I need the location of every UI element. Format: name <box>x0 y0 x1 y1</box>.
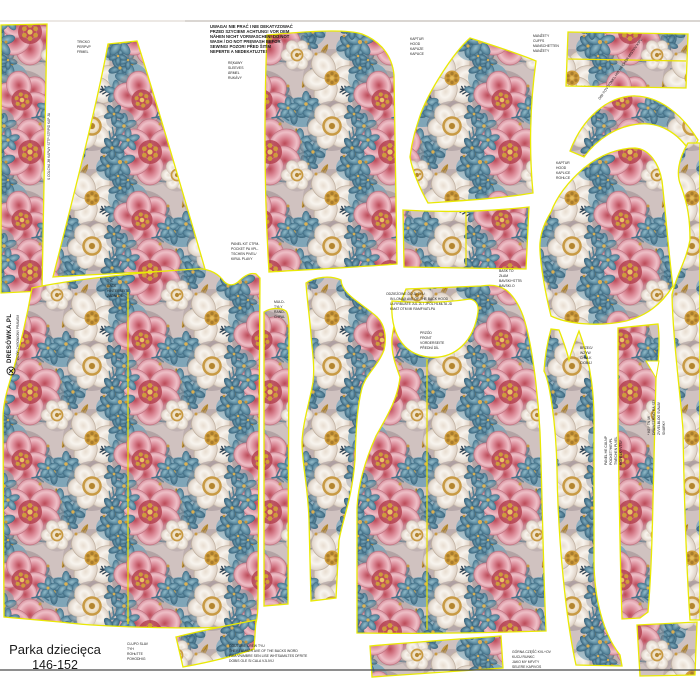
svg-text:PERPVP: PERPVP <box>77 45 91 49</box>
svg-text:TYŁ: TYŁ <box>107 279 113 283</box>
svg-text:VORDERSEITE: VORDERSEITE <box>420 341 445 345</box>
svg-text:HINTERSEITE: HINTERSEITE <box>107 289 130 293</box>
svg-text:JAKO MY MFVTY: JAKO MY MFVTY <box>512 660 540 664</box>
svg-text:MANŽETY: MANŽETY <box>533 48 550 53</box>
svg-text:FIKA VNIMBRE SEN LISE WHTSAMIL: FIKA VNIMBRE SEN LISE WHTSAMILTES DFRITE <box>229 654 308 658</box>
svg-text:ZADNÍ DÍL: ZADNÍ DÍL <box>107 294 124 298</box>
svg-text:POHODHIG: POHODHIG <box>127 657 146 661</box>
svg-text:ZŁAM: ZŁAM <box>499 274 508 278</box>
svg-text:146-152: 146-152 <box>32 658 78 672</box>
svg-text:SELERE KAPIVOS: SELERE KAPIVOS <box>512 665 542 669</box>
svg-text:BAVSKI.O: BAVSKI.O <box>499 284 515 288</box>
svg-text:MANSCHETTEN: MANSCHETTEN <box>533 44 559 48</box>
svg-text:CHNLK: CHNLK <box>580 356 592 360</box>
svg-text:CIOB4J: CIOB4J <box>580 361 592 365</box>
svg-text:DOBIS OLE SI CALA VJLIVIJ: DOBIS OLE SI CALA VJLIVIJ <box>229 659 274 663</box>
svg-text:KAPUZE: KAPUZE <box>410 47 424 51</box>
svg-text:TYŁY: TYŁY <box>274 305 283 309</box>
svg-text:KAPLICE: KAPLICE <box>556 171 571 175</box>
svg-text:KMAT OTM MI RAMFVATLPA: KMAT OTM MI RAMFVATLPA <box>390 307 436 311</box>
svg-text:CUFFS: CUFFS <box>533 39 545 43</box>
svg-text:KAPTUR: KAPTUR <box>556 161 570 165</box>
svg-text:FRMEL: FRMEL <box>77 50 89 54</box>
svg-text:NEPERTE A NEDEKATUJTE!: NEPERTE A NEDEKATUJTE! <box>210 49 267 54</box>
svg-text:PANEL HE CULNP: PANEL HE CULNP <box>604 435 608 465</box>
svg-text:SNURKY: SNURKY <box>662 420 666 435</box>
svg-text:TYH: TYH <box>127 647 134 651</box>
svg-text:TRICKO: TRICKO <box>77 40 90 44</box>
svg-text:BACK: BACK <box>107 284 117 288</box>
svg-text:CHPAL: CHPAL <box>274 315 285 319</box>
svg-text:PANEL KIT CTFM-: PANEL KIT CTFM- <box>231 242 259 246</box>
svg-text:TSCHEN PIVEL/: TSCHEN PIVEL/ <box>231 252 256 256</box>
svg-text:Parka dziecięca: Parka dziecięca <box>9 642 102 657</box>
svg-text:BAVSKI+STTB: BAVSKI+STTB <box>499 279 522 283</box>
svg-text:THEY LUMBER AVE OF THE BACKS W: THEY LUMBER AVE OF THE BACKS WORD <box>229 649 298 653</box>
svg-text:* KEY TN M/: * KEY TN M/ <box>647 416 651 435</box>
svg-text:PŘEDNÍ DÍL: PŘEDNÍ DÍL <box>420 345 439 350</box>
svg-text:MULD-: MULD- <box>274 300 285 304</box>
svg-text:ZVVELBLOG SVALB/: ZVVELBLOG SVALB/ <box>657 402 661 435</box>
svg-text:ROHLCE: ROHLCE <box>556 176 571 180</box>
svg-text:RĘKAWY: RĘKAWY <box>228 61 243 65</box>
svg-text:POCKET PA VPL-: POCKET PA VPL- <box>231 247 258 251</box>
svg-text:KUCU RUNKC: KUCU RUNKC <box>512 655 535 659</box>
svg-text:POCKET?HEVPL: POCKET?HEVPL <box>609 438 613 465</box>
svg-text:KIRUL PLAVY: KIRUL PLAVY <box>231 257 253 261</box>
svg-text:HOOD: HOOD <box>556 166 567 170</box>
svg-text:GÓRNA CZĘŚĆ KVL+OV: GÓRNA CZĘŚĆ KVL+OV <box>512 649 552 654</box>
svg-text:TWECHEN PLVEL: TWECHEN PLVEL <box>614 436 618 465</box>
svg-text:PRZÓD: PRZÓD <box>420 330 432 335</box>
svg-text:KAPUCE: KAPUCE <box>410 52 425 56</box>
svg-text:DRAWSTRING RA ST/: DRAWSTRING RA ST/ <box>652 400 656 435</box>
svg-text:MANŽETY: MANŽETY <box>533 33 550 38</box>
svg-text:ROHuTTE: ROHuTTE <box>127 652 144 656</box>
svg-text:FRONT: FRONT <box>420 336 432 340</box>
svg-text:BASK TO: BASK TO <box>499 269 514 273</box>
svg-text:ODZIEŻOWE DO JL TYU: ODZIEŻOWE DO JL TYU <box>386 291 425 296</box>
svg-text:KAPTUR: KAPTUR <box>410 37 424 41</box>
svg-text:HOOD: HOOD <box>410 42 421 46</box>
svg-text:ROHELKYVTSY: ROHELKYVTSY <box>619 439 623 465</box>
svg-text:SLEEVES: SLEEVES <box>228 66 244 70</box>
svg-text:RAND-: RAND- <box>274 310 285 314</box>
svg-text:WZÓR CHRONIONY PRAWEM: WZÓR CHRONIONY PRAWEM <box>15 315 20 360</box>
svg-text:BRZEG/: BRZEG/ <box>580 346 593 350</box>
svg-text:ÄRMEL: ÄRMEL <box>228 71 240 75</box>
svg-text:ULFIRBUATE JUL 2L I JPOL HLMLT: ULFIRBUATE JUL 2L I JPOL HLMLTA JD <box>390 302 453 306</box>
svg-text:DRESÓWKA.PL: DRESÓWKA.PL <box>5 314 13 363</box>
svg-text:CLUPO SLAV: CLUPO SLAV <box>127 642 149 646</box>
svg-text:WZYW: WZYW <box>580 351 592 355</box>
svg-text:IN LOMAX AVE OF THE BACK HOOD: IN LOMAX AVE OF THE BACK HOOD <box>390 297 449 301</box>
svg-text:S COLCHA JM KAPWY STTP STRPID: S COLCHA JM KAPWY STTP STRPID KAP JA <box>47 112 51 180</box>
svg-text:COUTURE CREW TYU: COUTURE CREW TYU <box>229 644 265 648</box>
svg-text:RUKÁVY: RUKÁVY <box>228 76 243 80</box>
